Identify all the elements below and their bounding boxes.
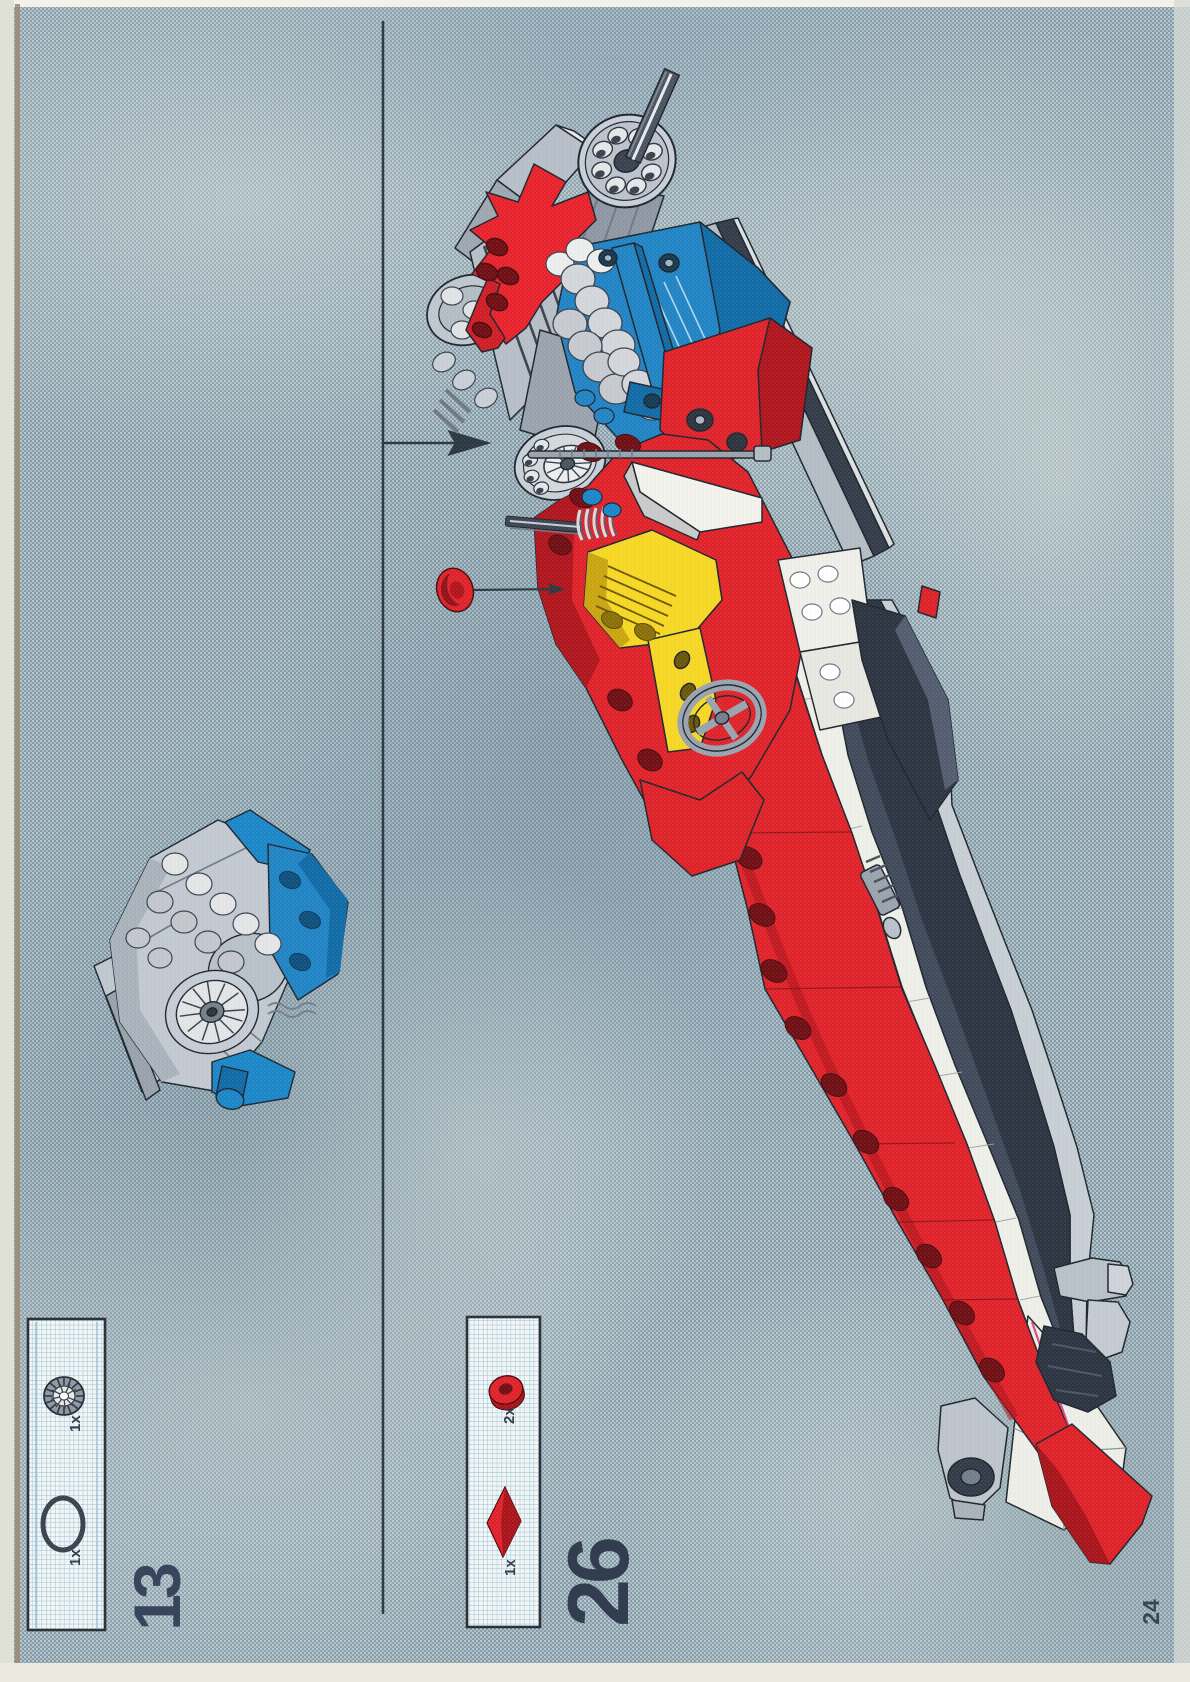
svg-text:13: 13	[120, 1564, 194, 1631]
svg-text:24: 24	[1138, 1599, 1164, 1625]
svg-text:26: 26	[551, 1539, 647, 1627]
